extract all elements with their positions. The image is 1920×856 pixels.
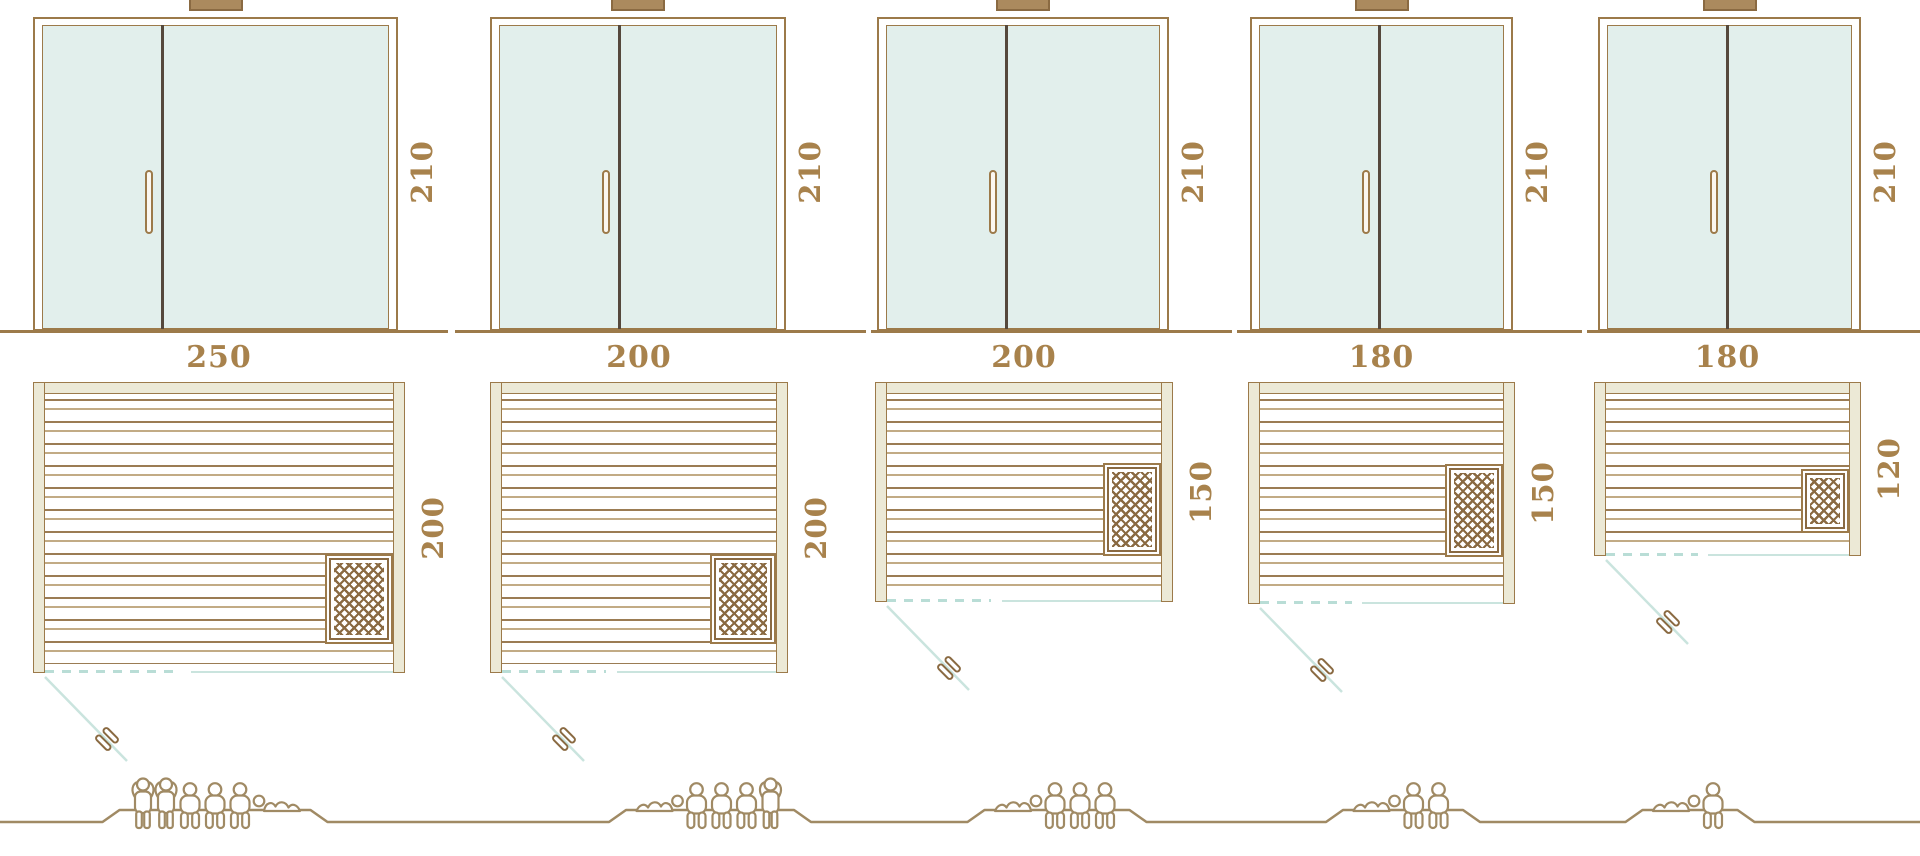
- plan-wall-top: [490, 382, 788, 394]
- plan-depth-dimension: 200: [801, 483, 831, 573]
- person-sitting-icon: [1096, 783, 1115, 828]
- person-lying-icon: [1354, 796, 1400, 811]
- person-sitting-icon: [231, 783, 250, 828]
- plan-depth-dimension: 200: [418, 483, 448, 573]
- person-lying-icon: [995, 796, 1041, 811]
- door-leaf-divider: [618, 25, 621, 329]
- door-height-dimension: 210: [1522, 127, 1552, 217]
- sauna-size-comparison-diagram: 2102502002102002002102001502101801502101…: [0, 0, 1920, 856]
- plan-width-dimension: 180: [1248, 340, 1515, 375]
- capacity-group-2: [637, 779, 782, 829]
- roof-vent: [996, 0, 1050, 11]
- person-standing-icon: [132, 779, 153, 829]
- plan-wall-top: [1594, 382, 1861, 394]
- door-leaf-divider: [161, 25, 164, 329]
- plan-wall-left: [490, 382, 502, 673]
- door-leaf-divider: [1726, 25, 1729, 329]
- door-handle-icon: [602, 170, 610, 234]
- person-sitting-icon: [1404, 783, 1423, 828]
- roof-vent: [1355, 0, 1409, 11]
- door-glass: [1259, 25, 1504, 329]
- roof-vent: [189, 0, 243, 11]
- door-handle-icon: [145, 170, 153, 234]
- plan-wall-right: [393, 382, 405, 673]
- person-sitting-icon: [181, 783, 200, 828]
- plan-wall-left: [1594, 382, 1606, 556]
- plan-depth-dimension: 120: [1874, 424, 1904, 514]
- person-lying-icon: [254, 796, 300, 811]
- plan-width-dimension: 200: [875, 340, 1173, 375]
- person-sitting-icon: [1704, 783, 1723, 828]
- door-handle-icon: [1710, 170, 1718, 234]
- door-glass: [1607, 25, 1852, 329]
- person-lying-icon: [1653, 796, 1699, 811]
- plan-wall-right: [776, 382, 788, 673]
- door-swing-line: [877, 602, 1047, 717]
- door-glass: [886, 25, 1160, 329]
- person-standing-icon: [155, 779, 176, 829]
- plan-depth-dimension: 150: [1528, 448, 1558, 538]
- plan-wall-left: [875, 382, 887, 602]
- heater-grid-icon: [1454, 473, 1494, 548]
- person-sitting-icon: [1429, 783, 1448, 828]
- floor-line: [455, 330, 866, 333]
- door-swing-line: [1250, 604, 1420, 719]
- person-lying-icon: [637, 796, 683, 811]
- capacity-ground-profile: [0, 740, 1920, 856]
- floor-line: [1237, 330, 1582, 333]
- floor-line: [871, 330, 1232, 333]
- door-height-dimension: 210: [1178, 127, 1208, 217]
- door-glass: [42, 25, 389, 329]
- person-sitting-icon: [1046, 783, 1065, 828]
- person-sitting-icon: [687, 783, 706, 828]
- door-height-dimension: 210: [1870, 127, 1900, 217]
- plan-wall-top: [33, 382, 405, 394]
- door-handle-icon: [989, 170, 997, 234]
- person-sitting-icon: [737, 783, 756, 828]
- plan-width-dimension: 250: [33, 340, 405, 375]
- person-standing-icon: [760, 779, 781, 829]
- plan-wall-left: [1248, 382, 1260, 604]
- door-handle-icon: [1362, 170, 1370, 234]
- plan-wall-right: [1503, 382, 1515, 604]
- heater-grid-icon: [1112, 472, 1152, 547]
- roof-vent: [611, 0, 665, 11]
- floor-line: [1587, 330, 1920, 333]
- glass-front-line: [191, 671, 393, 674]
- plan-width-dimension: 180: [1594, 340, 1861, 375]
- plan-depth-dimension: 150: [1186, 447, 1216, 537]
- door-height-dimension: 210: [407, 127, 437, 217]
- person-sitting-icon: [712, 783, 731, 828]
- plan-wall-top: [875, 382, 1173, 394]
- door-leaf-divider: [1378, 25, 1381, 329]
- capacity-group-3: [995, 783, 1115, 828]
- plan-wall-top: [1248, 382, 1515, 394]
- heater-grid-icon: [334, 563, 384, 635]
- door-swing-line: [1596, 556, 1766, 671]
- door-leaf-divider: [1005, 25, 1008, 329]
- roof-vent: [1703, 0, 1757, 11]
- person-sitting-icon: [1071, 783, 1090, 828]
- capacity-group-4: [1354, 783, 1449, 828]
- capacity-group-5: [1653, 783, 1723, 828]
- plan-wall-right: [1849, 382, 1861, 556]
- door-glass: [499, 25, 777, 329]
- plan-wall-right: [1161, 382, 1173, 602]
- door-height-dimension: 210: [795, 127, 825, 217]
- plan-wall-left: [33, 382, 45, 673]
- plan-width-dimension: 200: [490, 340, 788, 375]
- capacity-group-1: [132, 779, 300, 829]
- heater-grid-icon: [1810, 478, 1840, 524]
- floor-line: [0, 330, 448, 333]
- person-sitting-icon: [206, 783, 225, 828]
- heater-grid-icon: [719, 563, 767, 635]
